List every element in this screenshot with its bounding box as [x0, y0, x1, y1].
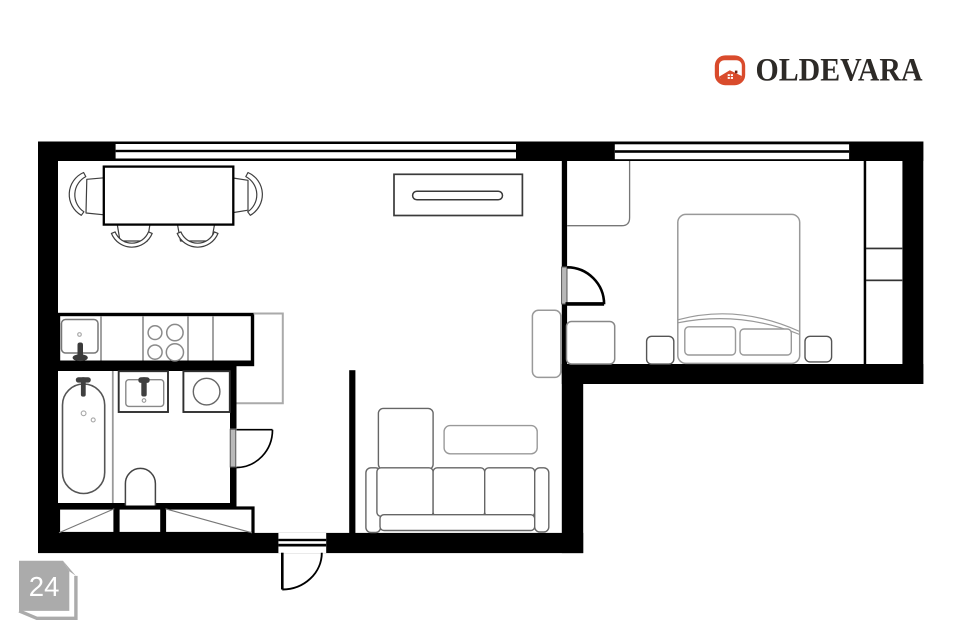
- svg-text:24: 24: [29, 571, 60, 602]
- svg-text:OLDEVARA: OLDEVARA: [756, 53, 923, 89]
